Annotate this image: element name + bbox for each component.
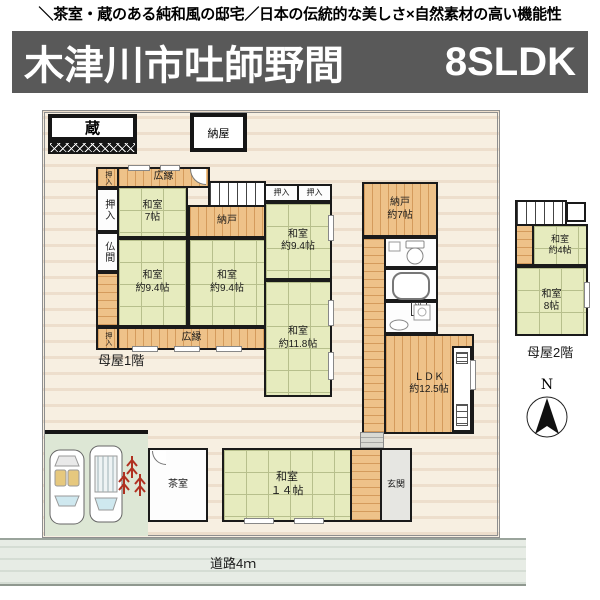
room-washitsu-94-c: 和室 約9.4帖 (264, 202, 332, 280)
room-kura: 蔵 (48, 114, 137, 141)
window (328, 300, 334, 326)
room-butsuma: 仏間 (96, 232, 119, 272)
room-genkan: 玄関 (380, 448, 412, 522)
stairs-2f (515, 200, 567, 226)
washitsu14-label: 和室 １４帖 (271, 471, 304, 499)
room-washitsu-14: 和室 １４帖 (222, 448, 352, 522)
bathtub-icon (393, 273, 429, 299)
window (174, 346, 200, 352)
room-washitsu-94-b: 和室 約9.4帖 (188, 238, 266, 327)
small-sink-icon (389, 242, 400, 251)
room-oshiire-bottom-left: 押入 (96, 327, 119, 350)
oshiire-label: 押入 (307, 188, 323, 198)
nando7-label: 納戸 約7帖 (387, 197, 413, 222)
stove-icon (456, 352, 468, 364)
north-label: N (521, 378, 573, 392)
window (328, 215, 334, 241)
ldk-label: ＬＤＫ 約12.5帖 (409, 372, 448, 397)
window (160, 165, 180, 171)
window (244, 518, 274, 524)
room-washitsu-4: 和室 約4帖 (532, 224, 588, 266)
bath-fixtures-icon (384, 237, 438, 334)
window (216, 346, 242, 352)
entry-wood-floor (350, 448, 382, 522)
naya-label: 納屋 (208, 125, 230, 141)
room-oshiire-r1: 押入 (264, 184, 299, 202)
title-location: 木津川市吐師野間 (24, 33, 344, 91)
washitsu4-label: 和室 約4帖 (548, 234, 571, 257)
room-oshiire-r2: 押入 (297, 184, 332, 202)
compass: N (521, 378, 573, 442)
room-nando-1f: 納戸 (188, 205, 266, 238)
hiroen-label: 広縁 (182, 332, 202, 345)
sink-icon (390, 320, 408, 330)
kitchen-shelf-icon (456, 404, 468, 426)
washer-icon (414, 305, 430, 320)
washitsu94-label: 和室 約9.4帖 (136, 270, 170, 295)
oshiire-label: 押入 (101, 199, 114, 221)
room-oshiire-left: 押入 (96, 188, 119, 232)
window (470, 360, 476, 390)
room-washitsu-8: 和室 8帖 (515, 266, 588, 336)
room-washitsu-118: 和室 約11.8帖 (264, 280, 332, 397)
butsuma-label: 仏間 (101, 241, 114, 263)
oshiire-label: 押入 (103, 171, 112, 185)
room-washitsu-94-a: 和室 約9.4帖 (117, 238, 188, 327)
room-washitsu-7: 和室 7帖 (117, 186, 188, 238)
toilet-icon (407, 248, 423, 264)
washitsu118-label: 和室 約11.8帖 (279, 326, 318, 351)
washitsu94-label: 和室 約9.4帖 (281, 229, 315, 254)
floorplan-flyer: ＼茶室・蔵のある純和風の邸宅／日本の伝統的な美しさ×自然素材の高い機能性 木津川… (0, 0, 600, 600)
oshiire-label: 押入 (103, 332, 112, 346)
washitsu94-label: 和室 約9.4帖 (210, 270, 244, 295)
title-bar: 木津川市吐師野間 8SLDK (12, 31, 588, 93)
window (584, 282, 590, 308)
toilet-tank-icon (406, 241, 424, 248)
tree-icon (119, 456, 145, 496)
title-plan: 8SLDK (445, 40, 576, 85)
window (294, 518, 324, 524)
room-nando-7: 納戸 約7帖 (362, 182, 438, 237)
room-oshiire-top: 押入 (96, 167, 119, 188)
road-label: 道路4ｍ (210, 553, 256, 572)
washitsu8-label: 和室 8帖 (542, 289, 562, 314)
landing-2f (566, 202, 586, 222)
entry-steps (360, 432, 384, 449)
main-house-2f-label: 母屋2階 (527, 342, 573, 361)
main-house-1f-label: 母屋1階 (98, 350, 144, 369)
annex-corridor (362, 237, 386, 434)
window (132, 346, 158, 352)
engawa-left (96, 272, 119, 327)
washitsu7-label: 和室 7帖 (143, 200, 163, 225)
kura-hatch-wall (48, 141, 137, 154)
oshiire-label: 押入 (274, 188, 290, 198)
nando-label: 納戸 (217, 215, 237, 228)
parking-graphics (48, 444, 148, 532)
north-arrow-icon (521, 392, 573, 440)
car-icon (90, 446, 122, 522)
road: 道路4ｍ (0, 538, 526, 586)
window (128, 165, 150, 171)
car-icon (50, 450, 84, 524)
kura-label: 蔵 (85, 117, 100, 138)
window (328, 352, 334, 380)
chashitsu-label: 茶室 (168, 479, 188, 492)
tagline: ＼茶室・蔵のある純和風の邸宅／日本の伝統的な美しさ×自然素材の高い機能性 (0, 0, 600, 30)
hiroen-label: 広縁 (154, 171, 174, 184)
room-naya: 納屋 (190, 113, 247, 152)
stairs-1f (208, 181, 266, 207)
genkan-label: 玄関 (387, 479, 405, 490)
